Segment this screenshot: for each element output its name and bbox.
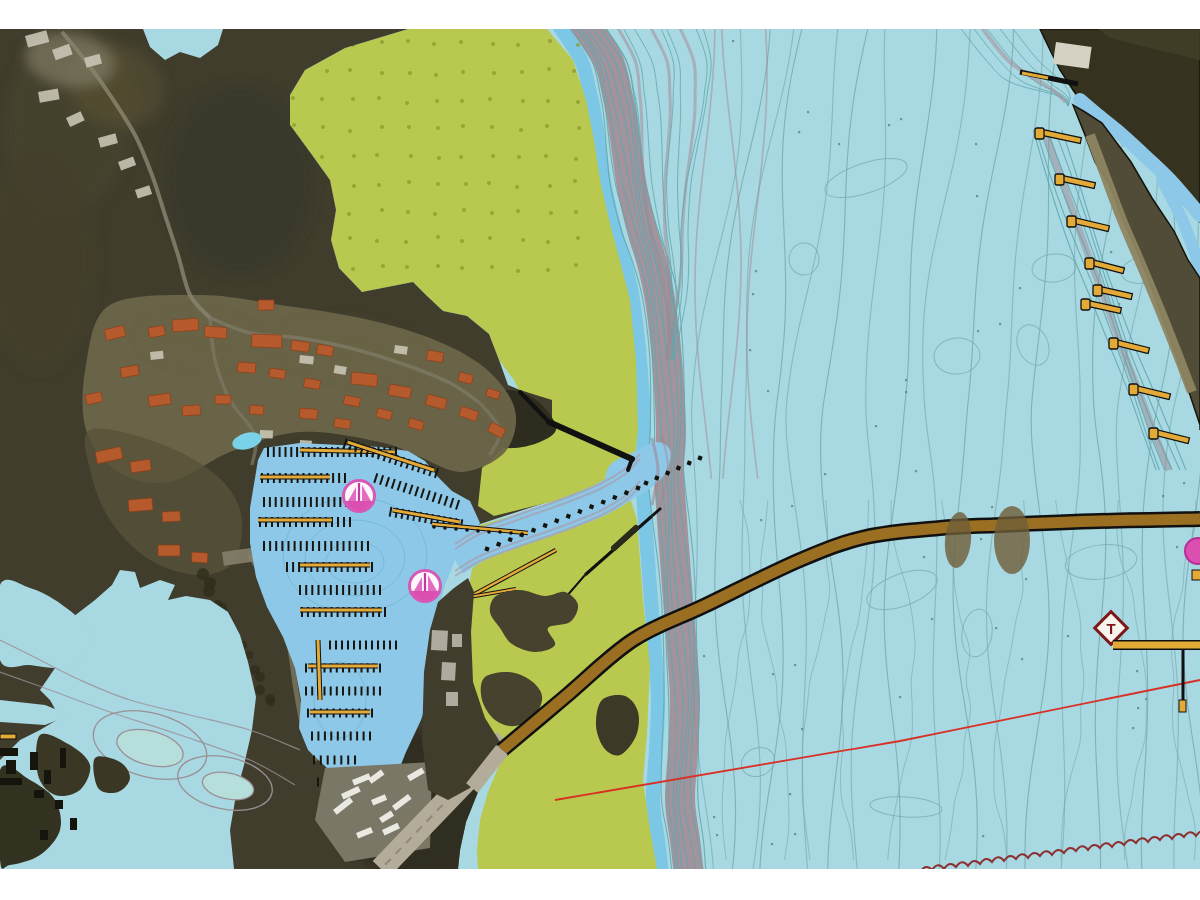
svg-text:T: T	[1106, 620, 1115, 637]
